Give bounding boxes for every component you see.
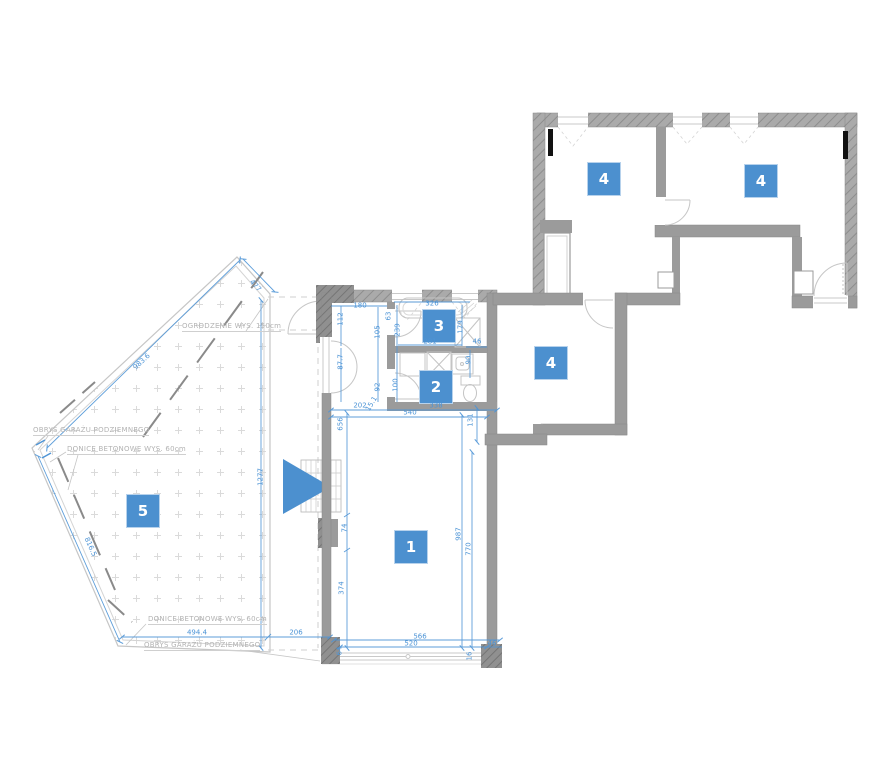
dimension-label: 63 xyxy=(386,312,393,321)
dimension-label: 987 xyxy=(456,527,463,540)
room-label: 2 xyxy=(419,370,453,404)
annotation-label: DONICE BETONOWE WYS. 60cm xyxy=(67,445,186,455)
dimension-label: 46 xyxy=(473,339,482,346)
garage-area xyxy=(32,257,320,661)
dimension-label: 179 xyxy=(458,320,465,333)
dimension-label: 494.4 xyxy=(187,630,207,637)
dimension-label: 656 xyxy=(338,417,345,430)
dimension-label: 281 xyxy=(423,339,436,346)
annotation-label: OBRYS GARAŻU PODZIEMNEGO xyxy=(33,426,149,436)
dimension-label: 105 xyxy=(375,325,382,338)
dimension-label: 16 xyxy=(467,652,474,661)
floor-plan-page: 1234445 18063326112105239179281469087.79… xyxy=(0,0,877,769)
dimension-label: 374 xyxy=(339,581,346,594)
dimension-label: 100 xyxy=(393,378,400,391)
section-marker xyxy=(843,131,848,159)
room-label: 4 xyxy=(587,162,621,196)
dimension-label: 74 xyxy=(342,524,349,533)
room-label: 1 xyxy=(394,530,428,564)
dimension-label: 90 xyxy=(466,356,473,365)
dimension-label: 46 xyxy=(488,641,497,648)
dimension-label: 92 xyxy=(375,383,382,392)
annotation-label: OBRYS GARAŻU PODZIEMNEGO xyxy=(144,641,260,651)
dimension-label: 770 xyxy=(466,542,473,555)
dimension-label: 326 xyxy=(425,301,438,308)
room-label: 4 xyxy=(534,346,568,380)
dimension-label: 206 xyxy=(289,630,302,637)
dimension-label: 338 xyxy=(429,403,442,410)
right-wing-walls xyxy=(485,112,857,445)
dimension-label: 64 xyxy=(337,647,344,656)
dimension-label: 540 xyxy=(403,410,416,417)
toilet xyxy=(461,376,480,402)
room-label: 5 xyxy=(126,494,160,528)
annotation-label: OGRODZENIE WYS. 150cm xyxy=(182,322,281,332)
dimension-label: 239 xyxy=(395,323,402,336)
dimension-label: 112 xyxy=(338,312,345,325)
annotation-label: DONICE BETONOWE WYS. 60cm xyxy=(148,615,267,625)
dimension-label: 180 xyxy=(353,303,366,310)
dimension-label: 87.7 xyxy=(338,354,345,370)
dimension-label: 520 xyxy=(404,641,417,648)
dimension-label: 1277 xyxy=(258,468,265,486)
section-marker xyxy=(548,129,553,156)
room-label: 4 xyxy=(744,164,778,198)
dimension-label: 131 xyxy=(468,413,475,426)
